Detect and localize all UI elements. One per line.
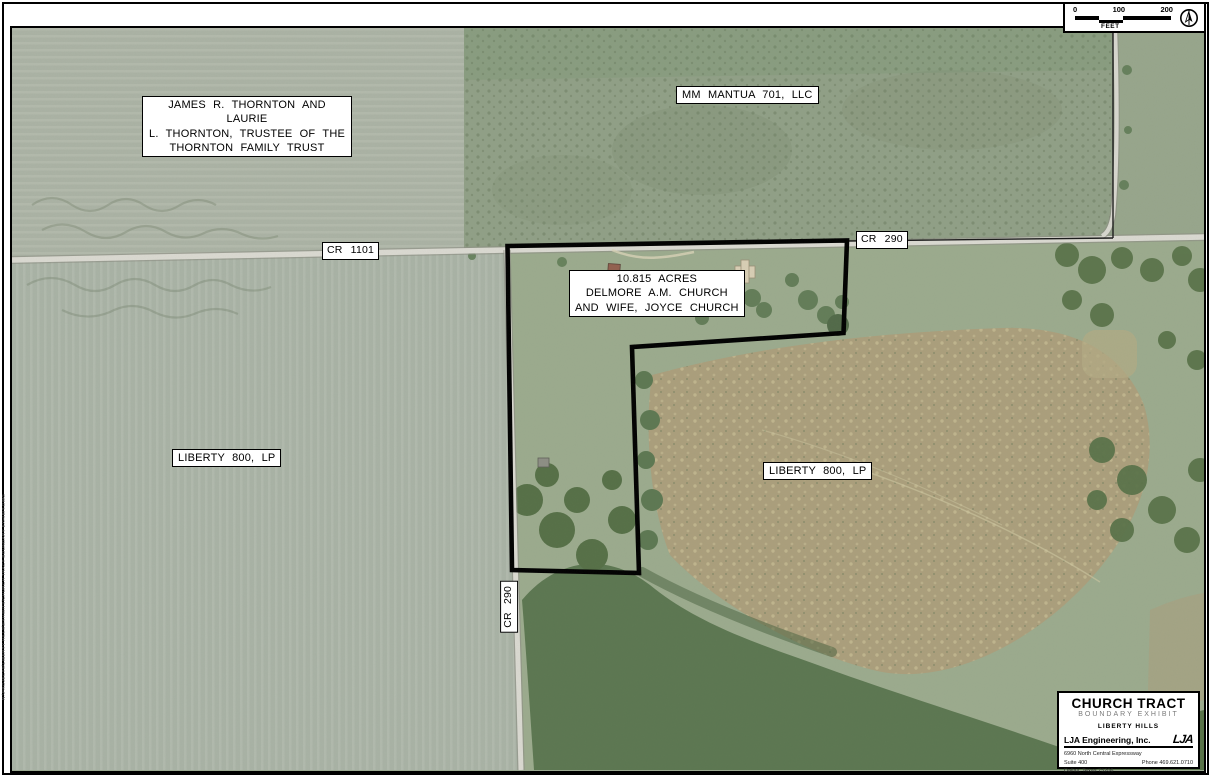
exhibit-subtitle: BOUNDARY EXHIBIT (1064, 711, 1193, 718)
scale-tick-100: 100 (1113, 5, 1126, 14)
exhibit-title: CHURCH TRACT (1064, 696, 1193, 711)
label-liberty-east: LIBERTY 800, LP (763, 462, 872, 480)
label-cr-290-east: CR 290 (856, 231, 908, 249)
label-liberty-west: LIBERTY 800, LP (172, 449, 281, 467)
scale-unit-label: FEET (1101, 23, 1120, 30)
scale-bar-segments (1075, 16, 1171, 23)
label-thornton-parcel: JAMES R. THORNTON AND LAURIE L. THORNTON… (142, 96, 352, 157)
scale-tick-0: 0 (1073, 5, 1077, 14)
north-arrow-icon (1179, 8, 1199, 28)
label-mantua-parcel: MM MANTUA 701, LLC (676, 86, 819, 104)
scale-bar: 0 100 200 FEET (1063, 2, 1206, 33)
company-contact: Phone 469.621.0710 FRN - F-1386 (1142, 750, 1193, 778)
company-address: 6960 North Central Expressway Suite 400 … (1064, 750, 1142, 778)
label-cr-290-south: CR 290 (500, 581, 518, 633)
label-church-tract: 10.815 ACRES DELMORE A.M. CHURCH AND WIF… (569, 270, 745, 317)
boundary-exhibit-page: JAMES R. THORNTON AND LAURIE L. THORNTON… (0, 0, 1212, 778)
scale-ticks: 0 100 200 (1073, 5, 1173, 14)
plot-stamp: N:\PROJECTS\LIBERTY HILLS\EXHIBITS\CHURC… (1, 400, 6, 700)
project-name: LIBERTY HILLS (1064, 723, 1193, 730)
scale-tick-200: 200 (1160, 5, 1173, 14)
lja-logo: LJA (1173, 735, 1194, 745)
company-phone: Phone 469.621.0710 (1142, 759, 1193, 768)
company-name: LJA Engineering, Inc. (1064, 735, 1151, 745)
title-block: CHURCH TRACT BOUNDARY EXHIBIT LIBERTY HI… (1057, 691, 1200, 769)
label-cr-1101: CR 1101 (322, 242, 379, 260)
